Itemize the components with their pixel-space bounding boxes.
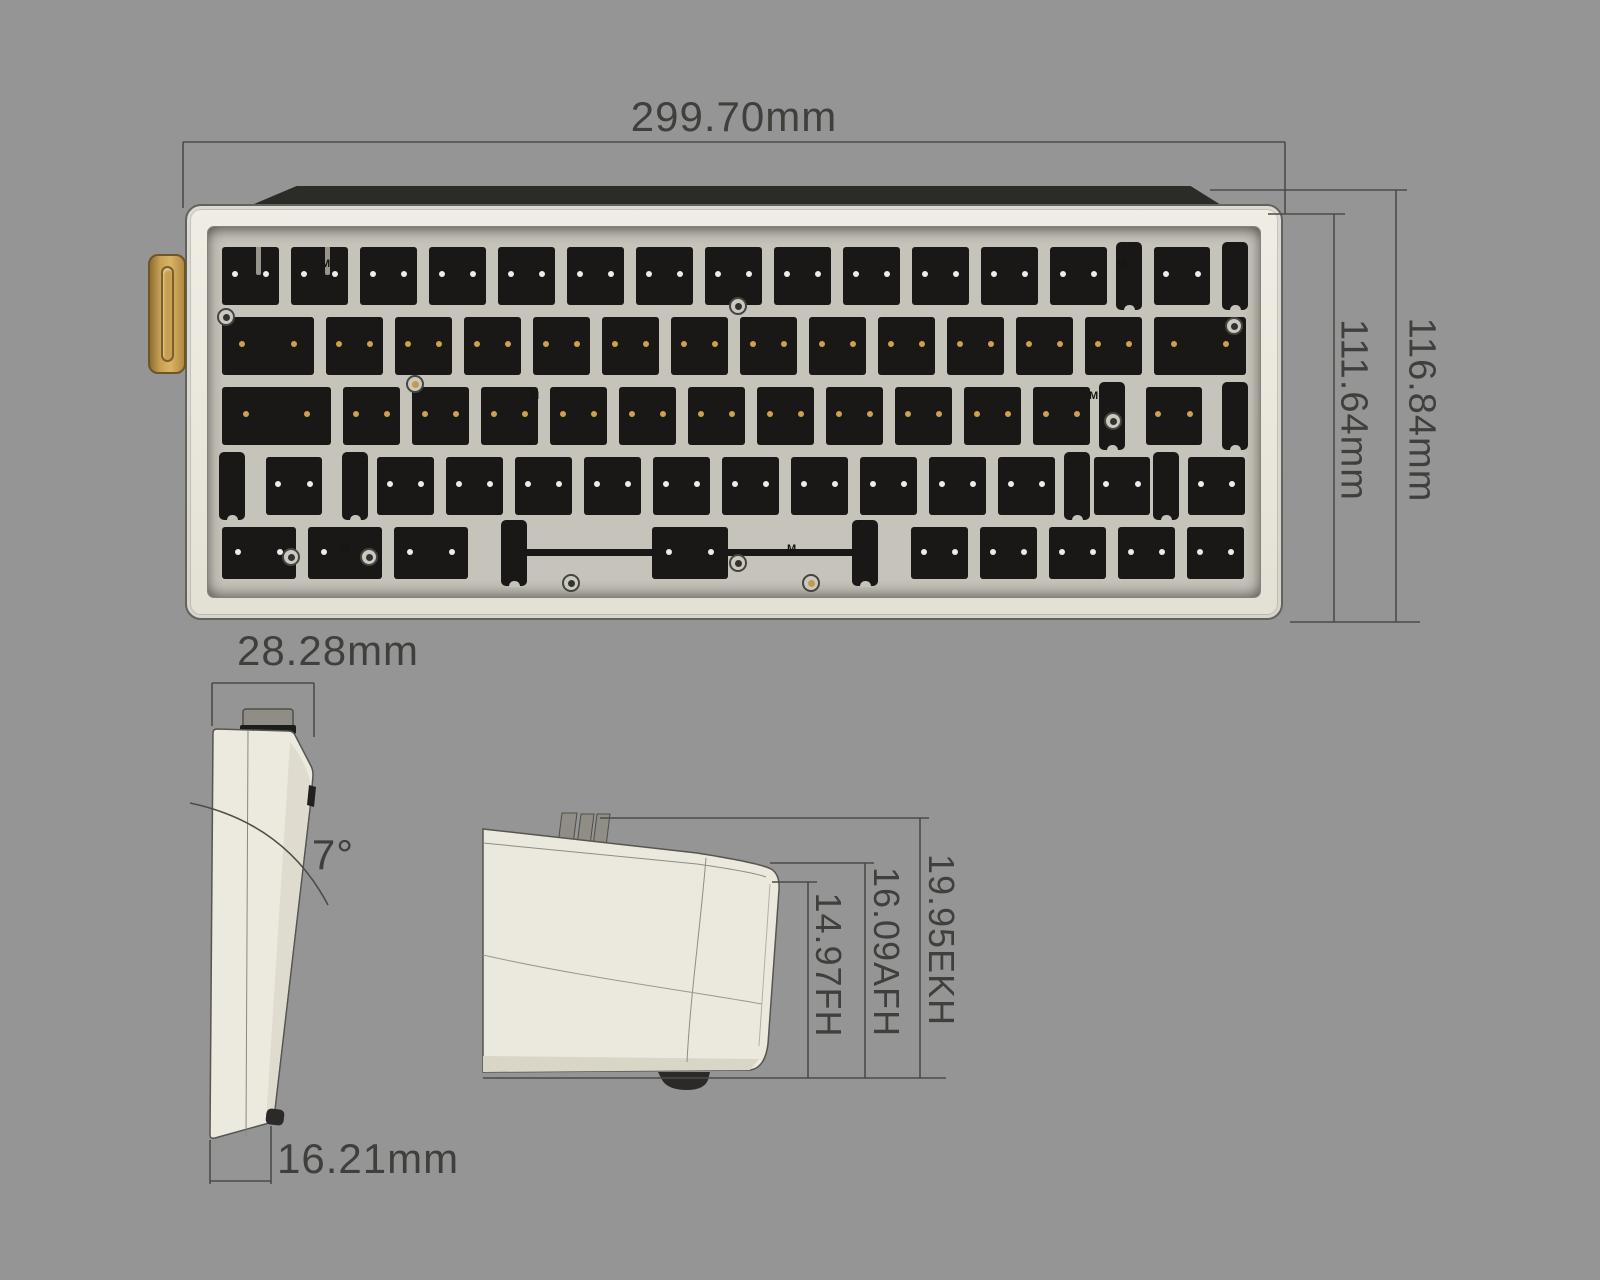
dim-side-depth: 28.28mm	[237, 627, 419, 675]
side-view	[190, 683, 328, 1184]
dim-typing-angle: 7°	[312, 831, 354, 879]
dim-alt-front-height: 16.09AFH	[865, 867, 907, 1037]
dim-top-width: 299.70mm	[631, 93, 837, 141]
front-view-body	[483, 829, 779, 1072]
top-view-dimension-lines	[183, 142, 1420, 622]
technical-drawing-canvas: MMMMMM	[0, 0, 1600, 1280]
dim-front-height: 14.97FH	[807, 892, 849, 1037]
dim-keycap-height: 19.95EKH	[920, 854, 962, 1026]
dim-case-outer-height: 116.84mm	[1400, 318, 1443, 503]
front-view-foot	[658, 1072, 710, 1090]
side-view-foot	[265, 1108, 285, 1126]
dim-side-height: 16.21mm	[277, 1135, 459, 1183]
dim-case-inner-height: 111.64mm	[1332, 319, 1375, 501]
